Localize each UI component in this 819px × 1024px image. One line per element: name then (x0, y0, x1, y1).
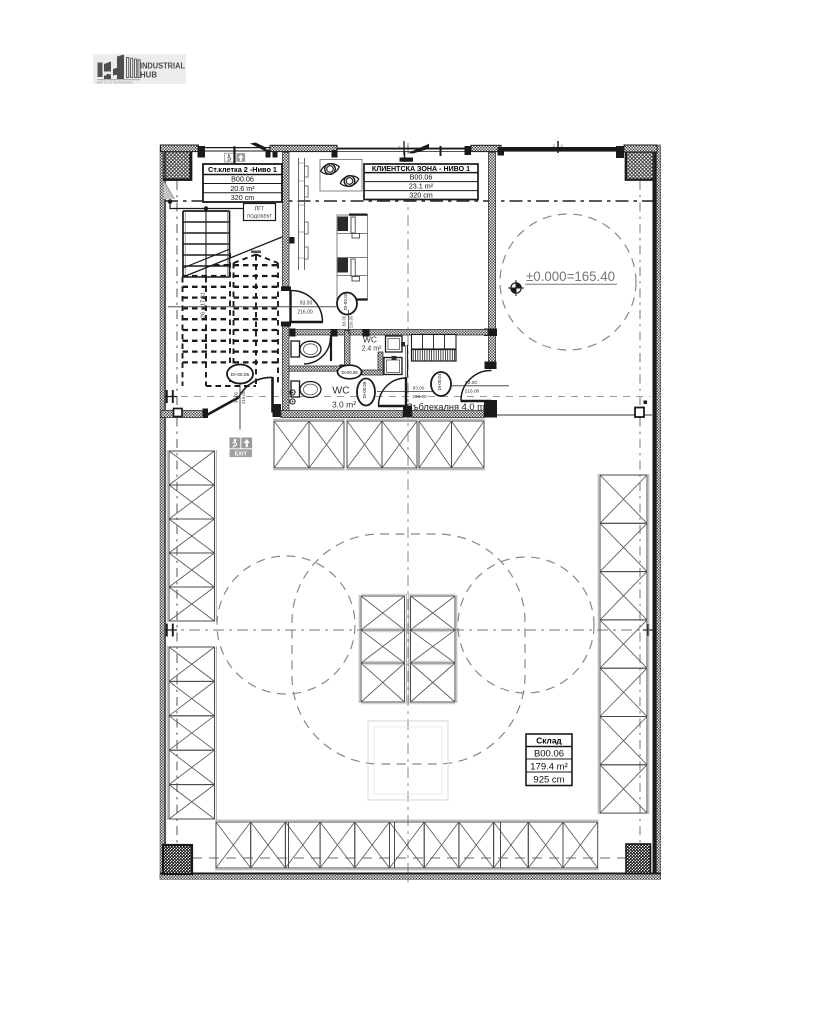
svg-text:238.00: 238.00 (412, 394, 427, 399)
svg-text:DI-00.04: DI-00.04 (437, 373, 442, 390)
svg-text:83.00: 83.00 (413, 386, 425, 391)
svg-text:Съблекалня 4.0 m²: Съблекалня 4.0 m² (406, 402, 488, 412)
svg-text:DI-00.05: DI-00.05 (231, 372, 250, 378)
svg-text:DI-00.08: DI-00.08 (362, 381, 367, 398)
svg-text:320 cm: 320 cm (231, 193, 255, 202)
svg-text:320 cm: 320 cm (409, 191, 433, 200)
svg-text:МЯСТО ЗА ТВОЯ БИЗНЕС: МЯСТО ЗА ТВОЯ БИЗНЕС (97, 81, 133, 85)
svg-text:EXIT: EXIT (235, 452, 248, 458)
svg-text:WC: WC (332, 385, 350, 397)
svg-text:Склад: Склад (536, 736, 562, 746)
svg-text:216.00: 216.00 (297, 310, 313, 316)
svg-text:B00.06: B00.06 (534, 749, 564, 760)
svg-text:216.00: 216.00 (465, 389, 480, 395)
svg-text:90.00: 90.00 (234, 391, 239, 403)
svg-text:HUB: HUB (140, 70, 157, 80)
svg-text:925 cm: 925 cm (533, 775, 564, 786)
svg-text:93.00: 93.00 (465, 380, 477, 386)
svg-text:26 x 17,81: 26 x 17,81 (201, 292, 207, 318)
svg-text:3.0 m²: 3.0 m² (332, 400, 356, 410)
svg-text:B00.06: B00.06 (410, 173, 433, 182)
svg-text:20.6 m²: 20.6 m² (230, 184, 255, 193)
svg-text:DI-00.03: DI-00.03 (343, 292, 348, 310)
svg-text:216.00: 216.00 (349, 315, 354, 328)
svg-text:Ст.клетка 2 -Ниво 1: Ст.клетка 2 -Ниво 1 (208, 165, 277, 174)
svg-text:2.4 m²: 2.4 m² (362, 346, 383, 353)
svg-text:ПОДОБЕКТ: ПОДОБЕКТ (247, 214, 272, 219)
svg-text:83.00: 83.00 (342, 315, 347, 326)
svg-text:93.00: 93.00 (300, 301, 313, 307)
svg-text:216.00: 216.00 (241, 390, 246, 404)
svg-text:23.1 m²: 23.1 m² (409, 182, 434, 191)
svg-text:±0.000=165.40: ±0.000=165.40 (526, 269, 615, 284)
svg-text:179.4 m²: 179.4 m² (530, 762, 568, 773)
svg-text:B00.06: B00.06 (231, 175, 254, 184)
svg-text:ПГТ: ПГТ (255, 207, 264, 213)
svg-text:WC: WC (363, 335, 377, 345)
svg-text:КЛИЕНТСКА ЗОНА - НИВО 1: КЛИЕНТСКА ЗОНА - НИВО 1 (372, 165, 470, 173)
svg-text:DI-00.08: DI-00.08 (341, 370, 358, 375)
